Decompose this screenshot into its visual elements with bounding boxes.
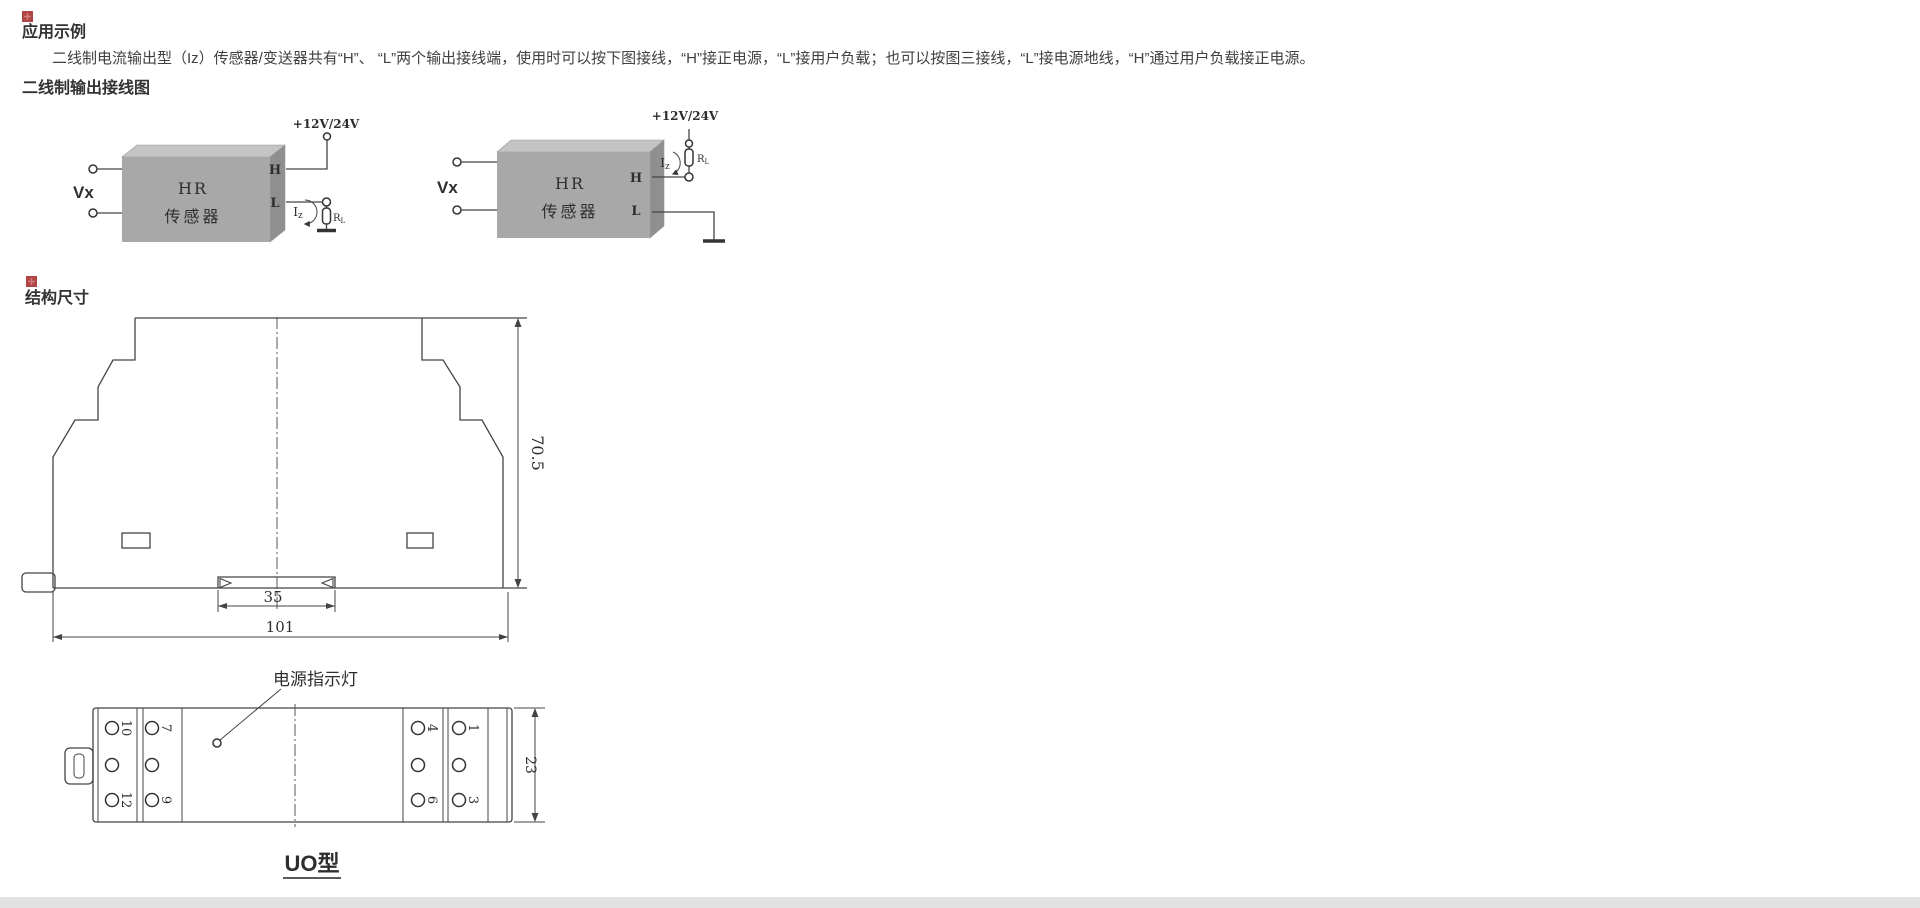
terminal-screw-10 — [106, 722, 119, 735]
current-label: Iz — [660, 156, 670, 172]
power-led-label: 电源指示灯 — [273, 670, 358, 689]
dim-arrow-right — [326, 603, 335, 609]
input-wires — [97, 169, 122, 213]
terminal-screw-1 — [453, 722, 466, 735]
wiring-diagram-load-at-H: HR 传感器 Vx H RL +12V/24V Iz L — [355, 88, 735, 258]
height-dim-value: 70.5 — [528, 435, 547, 471]
dim-arrow-left — [218, 603, 227, 609]
wiring-diagram-load-at-L: HR 传感器 Vx H +12V/24V L RL Iz — [55, 95, 395, 255]
terminal-screw-6 — [412, 794, 425, 807]
model-type-label: UO型 — [284, 851, 339, 876]
load-symbol-sub: L — [341, 217, 346, 225]
current-label: Iz — [293, 205, 303, 221]
led-leader-line — [220, 689, 281, 740]
h-wire — [286, 140, 327, 169]
page-bottom-bar — [0, 897, 1920, 908]
current-direction-arc — [305, 200, 317, 224]
application-section-title: 应用示例 — [22, 24, 86, 42]
input-terminals: Vx — [437, 158, 497, 214]
dim-arrow-right — [499, 634, 508, 640]
terminal-numbers: 10 12 7 9 4 6 1 3 — [118, 720, 480, 809]
current-direction-arc — [673, 152, 680, 174]
supply-terminal — [324, 133, 331, 140]
rail-dim-value: 35 — [263, 588, 282, 606]
terminal-screw-5 — [412, 759, 425, 772]
terminal-h-label: H — [269, 163, 281, 178]
terminal-screw-7 — [146, 722, 159, 735]
terminal-number-10: 10 — [118, 720, 133, 737]
dim-arrow-up — [515, 318, 522, 327]
power-led — [213, 739, 221, 747]
terminal-number-3: 3 — [465, 796, 480, 804]
terminal-screw-12 — [106, 794, 119, 807]
terminal-number-6: 6 — [424, 796, 439, 804]
input-terminal-bottom — [453, 206, 461, 214]
terminal-number-9: 9 — [158, 796, 173, 804]
load-terminal — [323, 198, 331, 206]
terminal-number-4: 4 — [424, 724, 439, 732]
supply-voltage-label: +12V/24V — [293, 117, 360, 131]
load-resistor-label: RL — [333, 213, 346, 225]
box-top-face — [122, 145, 285, 157]
box-side-face — [650, 140, 664, 238]
section-marker-icon — [26, 276, 37, 287]
structure-section-title: 结构尺寸 — [25, 290, 89, 308]
rail-clip-left-arrow — [220, 579, 231, 588]
mounting-slot-left — [122, 533, 150, 548]
box-top-face — [497, 140, 664, 152]
section-marker-icon — [22, 11, 33, 22]
input-wires — [461, 162, 497, 210]
din-latch — [22, 573, 55, 592]
terminal-screw-2 — [453, 759, 466, 772]
terminal-screw-4 — [412, 722, 425, 735]
box-front-face — [497, 152, 650, 238]
terminal-l-label: L — [270, 196, 279, 211]
current-symbol-sub: z — [298, 211, 303, 221]
load-resistor — [685, 149, 693, 166]
din-latch-tab — [65, 748, 93, 784]
supply-terminal — [686, 140, 693, 147]
application-body-text: 二线制电流输出型（Iz）传感器/变送器共有“H”、 “L”两个输出接线端，使用时… — [22, 48, 1602, 71]
input-terminal-bottom — [89, 209, 97, 217]
input-signal-label: Vx — [437, 178, 458, 197]
terminal-bottom-view-drawing: 10 12 7 9 4 6 1 3 电源指示灯 23 UO型 — [55, 655, 555, 893]
terminal-screw-8 — [146, 759, 159, 772]
dim-arrow-down — [532, 813, 539, 822]
load-resistor — [323, 208, 331, 224]
input-signal-label: Vx — [73, 183, 94, 202]
terminal-l-label: L — [631, 204, 640, 219]
terminal-number-12: 12 — [118, 792, 133, 809]
box-side-face — [270, 145, 285, 242]
profile-right-edge — [422, 318, 503, 588]
load-resistor-label: RL — [697, 154, 710, 166]
datasheet-page: 应用示例 二线制电流输出型（Iz）传感器/变送器共有“H”、 “L”两个输出接线… — [0, 0, 1920, 908]
height-dimension: 70.5 — [515, 318, 548, 588]
terminal-number-7: 7 — [158, 724, 173, 732]
dim-arrow-left — [53, 634, 62, 640]
device-type-label: 传感器 — [541, 203, 598, 221]
box-front-face — [122, 157, 270, 242]
sensor-box: HR 传感器 — [122, 145, 285, 242]
rail-clip-right-arrow — [322, 579, 333, 588]
enclosure-profile-drawing: 70.5 35 101 — [20, 315, 600, 665]
input-terminal-top — [453, 158, 461, 166]
terminal-screw-9 — [146, 794, 159, 807]
terminal-screws — [106, 722, 466, 807]
supply-voltage-label: +12V/24V — [652, 109, 719, 123]
load-terminal-bottom — [685, 173, 693, 181]
terminal-screw-11 — [106, 759, 119, 772]
dim-arrow-up — [532, 708, 539, 717]
device-type-label: 传感器 — [164, 208, 221, 226]
depth-dim-value: 23 — [522, 756, 538, 774]
terminal-h-label: H — [630, 171, 642, 186]
input-terminals: Vx — [73, 165, 122, 217]
din-latch-slot — [74, 754, 84, 778]
terminal-screw-3 — [453, 794, 466, 807]
device-name-label: HR — [178, 179, 208, 198]
mounting-slot-right — [407, 533, 433, 548]
dim-arrow-down — [515, 579, 522, 588]
terminal-number-1: 1 — [465, 724, 480, 732]
input-terminal-top — [89, 165, 97, 173]
current-symbol-sub: z — [665, 162, 670, 172]
device-name-label: HR — [555, 174, 585, 193]
sensor-box: HR 传感器 — [497, 140, 664, 238]
width-dim-value: 101 — [266, 618, 295, 636]
load-symbol-sub: L — [705, 158, 710, 166]
depth-dimension: 23 — [514, 708, 545, 822]
